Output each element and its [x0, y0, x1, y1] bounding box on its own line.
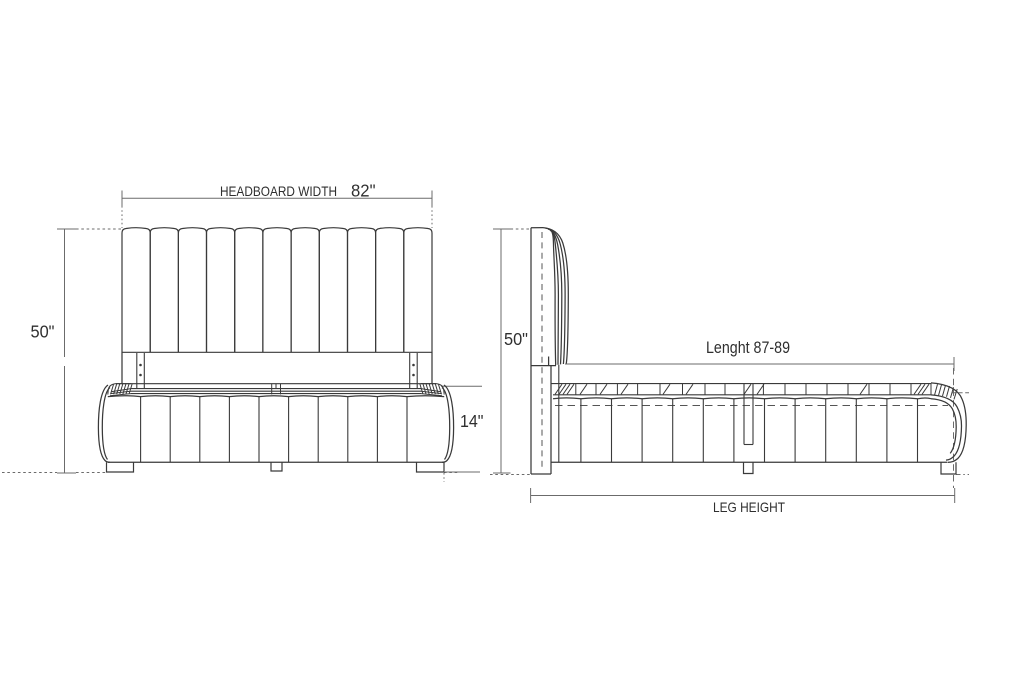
svg-text:82": 82": [351, 181, 376, 201]
svg-text:50": 50": [31, 322, 55, 342]
svg-text:HEADBOARD WIDTH: HEADBOARD WIDTH: [220, 183, 337, 199]
svg-text:LEG HEIGHT: LEG HEIGHT: [713, 499, 785, 515]
svg-text:Lenght 87-89: Lenght 87-89: [706, 338, 790, 357]
svg-text:50": 50": [504, 329, 528, 349]
svg-text:14": 14": [460, 411, 484, 431]
